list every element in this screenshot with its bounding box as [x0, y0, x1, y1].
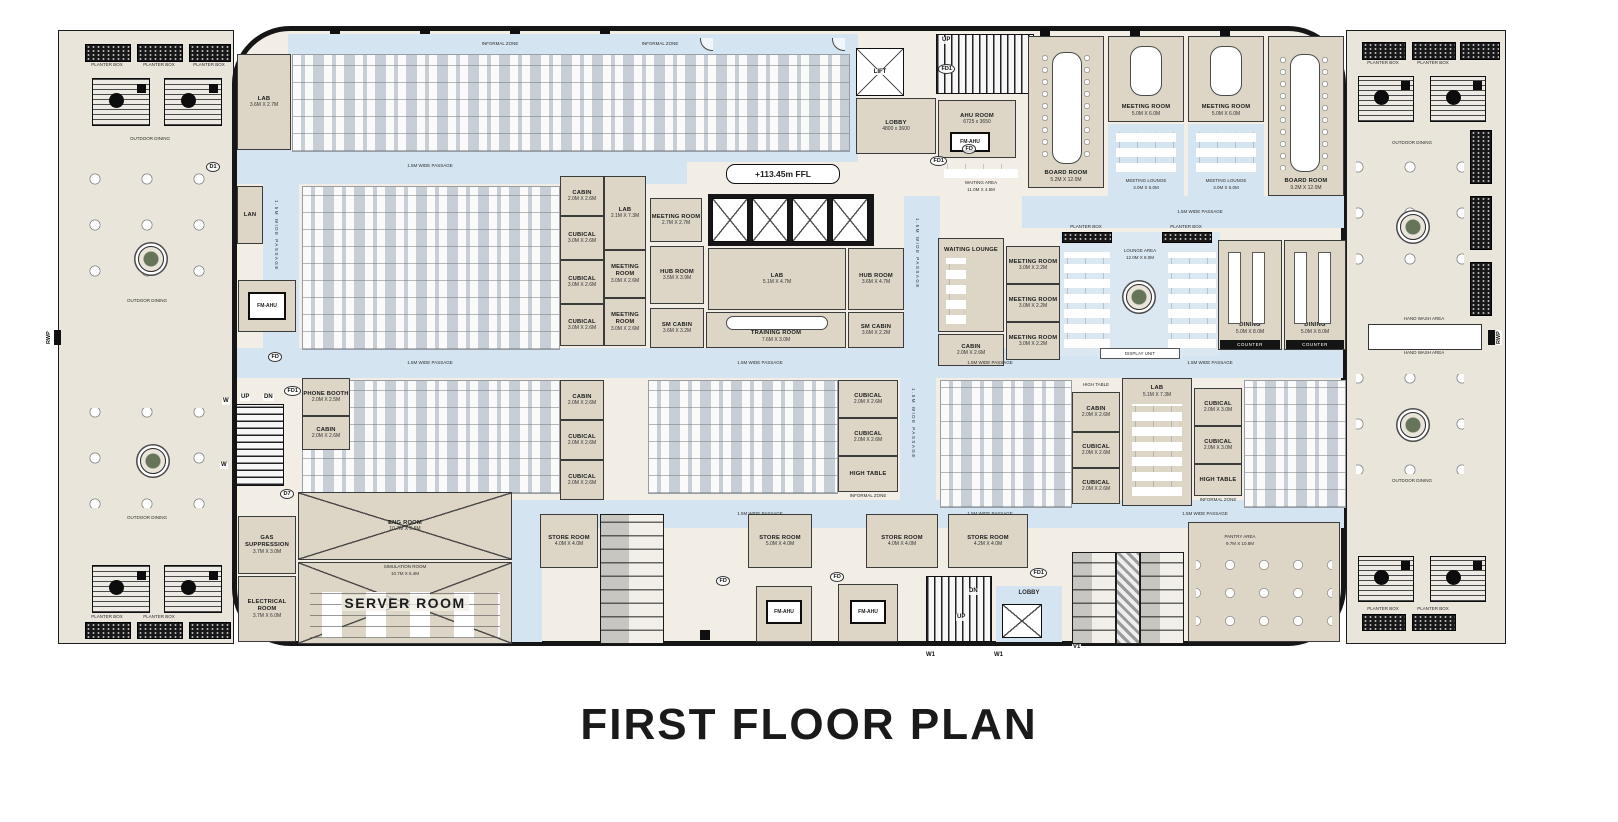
planter-box-label: PLANTER BOX	[193, 62, 225, 67]
passage-label: 1.5M WIDE PASSAGE	[967, 360, 1012, 365]
room-dims: 2.0M X 2.6M	[1082, 412, 1110, 418]
room-dims: 7.6M X 3.0M	[762, 337, 790, 343]
pergola-seating	[1358, 556, 1414, 602]
round-planter	[138, 246, 164, 272]
counter: COUNTER	[1286, 340, 1344, 349]
room-dims: 3.0M X 2.6M	[568, 325, 596, 331]
pergola-seating	[1430, 556, 1486, 602]
informal-zone-label: INFORMAL ZONE	[850, 493, 887, 498]
room-lan: LAN	[237, 186, 263, 244]
room-dims: 3.6M X 3.2M	[663, 328, 691, 334]
room-name: CABIN	[961, 344, 980, 351]
planter-box-label: PLANTER BOX	[91, 62, 123, 67]
meeting-lounge-dims: 3.0M X 5.0M	[1213, 185, 1239, 190]
planter-box	[1362, 42, 1406, 60]
round-planter	[1400, 214, 1426, 240]
planter-box	[1470, 196, 1492, 250]
room-name: PHONE BOOTH	[303, 391, 348, 398]
server-room-label: SERVER ROOM	[341, 595, 468, 611]
room-sm-cabin-a: SM CABIN 3.6M X 3.2M	[650, 308, 704, 348]
lounge-area-dims: 12.0M X 8.0M	[1126, 255, 1154, 260]
passage-label: 1.5M WIDE PASSAGE	[1177, 209, 1222, 214]
lounge-sofas	[1196, 132, 1256, 172]
passage-label: 1.5M WIDE PASSAGE	[407, 360, 452, 365]
room-name: MEETING ROOM	[1009, 335, 1057, 342]
planter-box	[1062, 232, 1112, 243]
room-name: CUBICAL	[854, 431, 881, 438]
room-name: MEETING ROOM	[1202, 104, 1250, 111]
service-shaft	[1116, 552, 1140, 644]
pergola-seating	[164, 78, 222, 126]
room-name: CUBICAL	[1204, 401, 1231, 408]
lab-desks	[1132, 404, 1182, 496]
room-name: CUBICAL	[568, 434, 595, 441]
room-phone-booth: PHONE BOOTH 2.0M X 2.5M	[302, 378, 350, 416]
room-lobby-top: LOBBY 4800 x 3600	[856, 98, 936, 154]
counter: COUNTER	[1220, 340, 1280, 349]
room-name: CABIN	[316, 427, 335, 434]
waiting-area-dims: 11.0M X 4.5M	[967, 187, 995, 192]
dining-table	[1228, 252, 1241, 324]
passage-label: 1.5M WIDE PASSAGE	[1187, 360, 1232, 365]
room-dims: 3.0M X 2.6M	[568, 282, 596, 288]
passage-vertical-lower	[900, 378, 936, 506]
room-store: STORE ROOM 4.0M X 4.0M	[866, 514, 938, 568]
ffl-level-tag: +113.45m FFL	[726, 164, 840, 184]
room-cubical: CUBICAL 3.0M X 2.6M	[560, 260, 604, 304]
room-cubical: CUBICAL 3.0M X 2.6M	[560, 216, 604, 260]
planter-box	[189, 622, 231, 639]
room-cubical: CUBICAL 2.0M X 2.6M	[560, 460, 604, 500]
up-label: UP	[956, 614, 966, 621]
pantry-tables	[1196, 550, 1332, 636]
meeting-table	[1130, 46, 1162, 96]
room-cubical: CUBICAL 2.0M X 2.6M	[560, 420, 604, 460]
outdoor-dining-label: OUTDOOR DINING	[127, 515, 167, 520]
room-name: CUBICAL	[1204, 439, 1231, 446]
pantry-label: PANTRY AREA	[1224, 534, 1255, 539]
room-name: WAITING LOUNGE	[944, 247, 998, 254]
round-planter	[1400, 412, 1426, 438]
planter-box-label: PLANTER BOX	[143, 614, 175, 619]
room-name: LAB	[1151, 385, 1164, 392]
room-dims: 4.0M X 4.0M	[888, 541, 916, 547]
room-store: STORE ROOM 4.0M X 4.0M	[540, 514, 598, 568]
room-name: MEETING ROOM	[605, 264, 645, 278]
toilet-block-left	[600, 514, 664, 644]
grid-marker-w: W	[220, 462, 228, 469]
meeting-lounge-label: MEETING LOUNGE	[1206, 178, 1247, 183]
rwp-marker: RWP	[46, 330, 52, 345]
passage-bottom-left-vertical	[512, 528, 542, 642]
planter-box	[1362, 614, 1406, 631]
passage-label-vertical: 1.5M WIDE PASSAGE	[911, 388, 916, 459]
passage-label: 1.5M WIDE PASSAGE	[407, 163, 452, 168]
room-dims: 2.0M X 2.6M	[854, 399, 882, 405]
room-dims: 5.0M X 6.0M	[1212, 111, 1240, 117]
room-name: STORE ROOM	[881, 535, 923, 542]
room-store: STORE ROOM 5.0M X 4.0M	[748, 514, 812, 568]
room-dims: 5.0M X 8.0M	[1236, 329, 1264, 335]
passage-label: 1.5M WIDE PASSAGE	[1182, 511, 1227, 516]
planter-box-label: PLANTER BOX	[1170, 224, 1202, 229]
room-name: HUB ROOM	[660, 269, 694, 276]
grid-marker-w1: W1	[993, 652, 1004, 659]
planter-box-label: PLANTER BOX	[91, 614, 123, 619]
simulation-room-label: SIMULATION ROOM	[384, 564, 426, 569]
planter-box	[137, 622, 183, 639]
lift: LIFT	[856, 48, 904, 96]
rwp-marker: RWP	[1496, 330, 1502, 345]
room-electrical: ELECTRICAL ROOM 3.7M X 6.0M	[238, 576, 296, 642]
room-name: ELECTRICAL ROOM	[239, 599, 295, 613]
simulation-room-dims: 10.7M X 6.4M	[391, 571, 419, 576]
room-name: CUBICAL	[568, 232, 595, 239]
pergola-seating	[1430, 76, 1486, 122]
room-meeting-27: MEETING ROOM 2.7M X 2.7M	[650, 198, 702, 242]
informal-zone-label: INFORMAL ZONE	[642, 41, 679, 46]
board-table	[1290, 54, 1320, 172]
outdoor-dining-label: OUTDOOR DINING	[1392, 140, 1432, 145]
room-name: SM CABIN	[662, 322, 692, 329]
planter-box	[1470, 262, 1492, 316]
pergola-seating	[92, 78, 150, 126]
room-name: CUBICAL	[1082, 444, 1109, 451]
up-label: UP	[240, 394, 250, 401]
room-cubical: CUBICAL 2.0M X 2.6M	[838, 418, 898, 456]
room-cubical: CUBICAL 2.0M X 2.6M	[1072, 432, 1120, 468]
room-name: MEETING ROOM	[1009, 297, 1057, 304]
hand-wash-label: HAND WASH AREA	[1404, 316, 1445, 321]
room-cubical: CUBICAL 3.0M X 2.6M	[560, 304, 604, 346]
room-eng: ENG ROOM 10.7M X 6.5M	[298, 492, 512, 560]
room-dims: 2.7M X 2.7M	[662, 220, 690, 226]
room-store: STORE ROOM 4.2M X 4.0M	[948, 514, 1028, 568]
outdoor-dining-label: OUTDOOR DINING	[127, 298, 167, 303]
toilet-block-right	[1072, 552, 1116, 644]
room-name: BOARD ROOM	[1285, 178, 1328, 185]
room-dims: 2.0M X 2.6M	[568, 196, 596, 202]
room-name: STORE ROOM	[967, 535, 1009, 542]
lounge-sofas	[1064, 252, 1110, 348]
room-cabin: CABIN 2.0M X 2.6M	[560, 380, 604, 420]
lift	[792, 198, 828, 242]
room-dims: 5.0M X 6.0M	[1132, 111, 1160, 117]
lift	[1002, 604, 1042, 638]
planter-box	[137, 44, 183, 62]
room-dims: 2.0M X 2.6M	[957, 350, 985, 356]
fm-ahu-unit: FM-AHU	[766, 600, 802, 624]
lounge-area-label: LOUNGE AREA	[1124, 248, 1156, 253]
lounge-sofas	[946, 258, 966, 324]
open-office-bottom-center	[648, 380, 838, 494]
rwp-outlet	[1488, 330, 1495, 345]
room-high-table: HIGH TABLE	[1194, 464, 1242, 496]
room-dims: 10.7M X 6.5M	[389, 526, 420, 532]
planter-box-label: PLANTER BOX	[143, 62, 175, 67]
room-name: ENG ROOM	[388, 520, 422, 527]
outdoor-dining-label: OUTDOOR DINING	[130, 136, 170, 141]
rwp-outlet	[54, 330, 61, 345]
room-meeting-22: MEETING ROOM 3.0M X 2.2M	[1006, 284, 1060, 322]
planter-box	[1412, 42, 1456, 60]
lift	[752, 198, 788, 242]
room-name: CABIN	[572, 394, 591, 401]
room-name: MEETING ROOM	[605, 312, 645, 326]
room-name: CABIN	[1086, 406, 1105, 413]
room-name: CUBICAL	[568, 319, 595, 326]
dining-table	[1294, 252, 1307, 324]
room-dims: 3.7M X 3.0M	[253, 549, 281, 555]
room-dims: 2.0M X 2.6M	[568, 440, 596, 446]
high-table-label: HIGH TABLE	[1083, 382, 1109, 387]
meeting-lounge-dims: 3.0M X 5.0M	[1133, 185, 1159, 190]
room-name: CUBICAL	[568, 276, 595, 283]
room-name: LAB	[258, 96, 271, 103]
planter-box	[1412, 614, 1456, 631]
room-lab-center: LAB 5.1M X 4.7M	[708, 248, 846, 310]
outdoor-dining-tables	[1356, 158, 1464, 268]
room-meeting-22: MEETING ROOM 3.0M X 2.2M	[1006, 246, 1060, 284]
room-dims: 5.2M X 12.0M	[1050, 177, 1081, 183]
room-name: CUBICAL	[568, 474, 595, 481]
pantry-dims: 9.7M X 10.8M	[1226, 541, 1254, 546]
down-label: DN	[263, 394, 274, 401]
planter-box-label: PLANTER BOX	[1367, 606, 1399, 611]
room-dims: 2.0M X 2.6M	[568, 400, 596, 406]
room-cubical: CUBICAL 2.0M X 2.6M	[838, 380, 898, 418]
room-sm-cabin-b: SM CABIN 3.6M X 2.2M	[848, 312, 904, 348]
planter-box-label: PLANTER BOX	[1367, 60, 1399, 65]
meeting-table	[1210, 46, 1242, 96]
lounge-sofas	[1168, 252, 1216, 348]
room-dims: 4.0M X 4.0M	[555, 541, 583, 547]
room-name: AHU ROOM	[960, 113, 994, 120]
room-name: MEETING ROOM	[1009, 259, 1057, 266]
room-name: SM CABIN	[861, 324, 891, 331]
waiting-area-label: WAITING AREA	[965, 180, 997, 185]
room-dims: 3.0M X 2.2M	[1019, 303, 1047, 309]
room-cubical: CUBICAL 2.0M X 3.0M	[1194, 388, 1242, 426]
up-label: UP	[941, 37, 951, 44]
board-chairs	[1082, 52, 1092, 162]
room-name: STORE ROOM	[548, 535, 590, 542]
door-marker-d7: D7	[280, 489, 294, 499]
down-label: DN	[968, 588, 979, 595]
room-name: CUBICAL	[1082, 480, 1109, 487]
pergola-seating	[92, 565, 150, 613]
passage-label: 1.5M WIDE PASSAGE	[967, 511, 1012, 516]
room-meeting-small: MEETING ROOM 3.0M X 2.6M	[604, 298, 646, 346]
passage-label-vertical: 1.5M WIDE PASSAGE	[274, 200, 279, 271]
room-name: LAB	[771, 273, 784, 280]
hand-wash-label: HAND WASH AREA	[1404, 350, 1445, 355]
planter-box	[1162, 232, 1212, 243]
outdoor-dining-label: OUTDOOR DINING	[1392, 478, 1432, 483]
lift-label: LIFT	[873, 69, 888, 76]
hand-wash-counter	[1368, 324, 1482, 350]
training-table	[726, 316, 828, 330]
plan-title: FIRST FLOOR PLAN	[0, 700, 1618, 750]
planter-box	[189, 44, 231, 62]
room-name: STORE ROOM	[759, 535, 801, 542]
room-name: HIGH TABLE	[1200, 477, 1237, 484]
display-unit-label: DISPLAY UNIT	[1125, 351, 1155, 356]
room-name: HIGH TABLE	[850, 471, 887, 478]
lift	[712, 198, 748, 242]
room-dims: 4800 x 3600	[882, 126, 910, 132]
planter-box	[85, 622, 131, 639]
room-name: TRAINING ROOM	[751, 330, 801, 337]
room-dims: 3.0M X 2.2M	[1019, 341, 1047, 347]
pergola-seating	[164, 565, 222, 613]
planter-box	[85, 44, 131, 62]
round-planter	[140, 448, 166, 474]
room-meeting-small: MEETING ROOM 3.0M X 2.6M	[604, 250, 646, 298]
open-office-bottom-right-b	[1244, 380, 1346, 508]
open-office-bottom-right-a	[940, 380, 1072, 508]
planter-box-label: PLANTER BOX	[1417, 60, 1449, 65]
room-dims: 3.6M X 4.7M	[862, 279, 890, 285]
room-cubical: CUBICAL 2.0M X 2.6M	[1072, 468, 1120, 504]
lift	[832, 198, 868, 242]
dining-table	[1318, 252, 1331, 324]
passage-label-vertical: 1.5M WIDE PASSAGE	[915, 218, 920, 289]
round-planter	[1126, 284, 1152, 310]
room-cubical: CUBICAL 2.0M X 3.0M	[1194, 426, 1242, 464]
grid-marker-w1: W1	[925, 652, 936, 659]
room-dims: 5.1M X 7.3M	[1143, 392, 1171, 398]
room-name: LOBBY	[885, 120, 906, 127]
room-name: MEETING ROOM	[1122, 104, 1170, 111]
open-office-top	[292, 54, 850, 152]
display-unit: DISPLAY UNIT	[1100, 348, 1180, 359]
room-dims: 3.6M X 2.7M	[250, 102, 278, 108]
room-lab-narrow: LAB 2.1M X 7.3M	[604, 176, 646, 250]
room-name: GAS SUPPRESSION	[239, 535, 295, 549]
grid-marker-w: W	[222, 398, 230, 405]
door-marker-d1: D1	[206, 162, 220, 172]
room-name: MEETING ROOM	[652, 214, 700, 221]
waiting-area-sofas	[944, 164, 1018, 178]
fm-ahu-unit: FM-AHU	[850, 600, 886, 624]
dining-table	[1252, 252, 1265, 324]
board-chairs	[1320, 54, 1330, 170]
planter-box	[1460, 42, 1500, 60]
staircase-left	[236, 404, 284, 486]
open-office-mid-left	[302, 186, 560, 350]
room-name: LAN	[244, 212, 257, 219]
board-chairs	[1040, 52, 1050, 162]
room-dims: 2.1M X 7.3M	[611, 213, 639, 219]
room-dims: 4.2M X 4.0M	[974, 541, 1002, 547]
toilet-block-right	[1140, 552, 1184, 644]
room-gas-suppression: GAS SUPPRESSION 3.7M X 3.0M	[238, 516, 296, 574]
room-name: CABIN	[572, 190, 591, 197]
room-dims: 2.0M X 2.6M	[568, 480, 596, 486]
fm-ahu-unit: FM-AHU	[248, 292, 286, 320]
room-dims: 3.7M X 6.0M	[253, 613, 281, 619]
room-high-table: HIGH TABLE	[838, 456, 898, 492]
room-dims: 2.0M X 2.5M	[312, 397, 340, 403]
room-dims: 5.0M X 4.0M	[766, 541, 794, 547]
room-meeting-22: MEETING ROOM 3.0M X 2.2M	[1006, 322, 1060, 360]
room-dims: 3.0M X 2.6M	[568, 238, 596, 244]
lobby-bottom-label: LOBBY	[1019, 590, 1040, 596]
room-cabin: CABIN 2.0M X 2.6M	[302, 416, 350, 450]
room-dims: 5.0M X 8.0M	[1301, 329, 1329, 335]
planter-box-label: PLANTER BOX	[1070, 224, 1102, 229]
room-name: LAB	[619, 207, 632, 214]
room-cabin: CABIN 2.0M X 2.6M	[560, 176, 604, 216]
room-dims: 2.0M X 2.6M	[854, 437, 882, 443]
lounge-sofas	[1116, 132, 1176, 172]
room-dims: 6725 x 3650	[963, 119, 991, 125]
meeting-lounge-label: MEETING LOUNGE	[1126, 178, 1167, 183]
planter-box	[1470, 130, 1492, 184]
grid-marker-v1: V1	[1072, 644, 1081, 651]
room-dims: 3.0M X 2.6M	[611, 278, 639, 284]
floor-plan: PLANTER BOX PLANTER BOX PLANTER BOX OUTD…	[0, 0, 1618, 822]
staircase-bottom	[926, 576, 992, 642]
room-hub-b: HUB ROOM 3.6M X 4.7M	[848, 248, 904, 310]
room-dims: 3.0M X 2.2M	[1019, 265, 1047, 271]
room-dims: 3.0M X 2.6M	[611, 326, 639, 332]
informal-zone-label: INFORMAL ZONE	[482, 41, 519, 46]
passage-label: 1.5M WIDE PASSAGE	[737, 511, 782, 516]
room-dims: 2.0M X 2.6M	[312, 433, 340, 439]
room-lab-small: LAB 3.6M X 2.7M	[237, 54, 291, 150]
room-name: HUB ROOM	[859, 273, 893, 280]
room-dims: 2.0M X 3.0M	[1204, 407, 1232, 413]
room-dims: 3.6M X 2.2M	[862, 330, 890, 336]
room-dims: 5.1M X 4.7M	[763, 279, 791, 285]
room-dims: 3.5M X 3.9M	[663, 275, 691, 281]
room-dims: 2.0M X 2.6M	[1082, 486, 1110, 492]
board-chairs	[1278, 54, 1288, 170]
column	[700, 630, 710, 640]
room-hub-a: HUB ROOM 3.5M X 3.9M	[650, 246, 704, 304]
informal-zone-label: INFORMAL ZONE	[1200, 497, 1237, 502]
board-table	[1052, 52, 1082, 164]
room-name: CUBICAL	[854, 393, 881, 400]
passage-label: 1.5M WIDE PASSAGE	[737, 360, 782, 365]
room-name: BOARD ROOM	[1045, 170, 1088, 177]
pergola-seating	[1358, 76, 1414, 122]
room-dims: 9.2M X 12.0M	[1290, 185, 1321, 191]
room-dims: 2.0M X 3.0M	[1204, 445, 1232, 451]
room-dims: 2.0M X 2.6M	[1082, 450, 1110, 456]
planter-box-label: PLANTER BOX	[1417, 606, 1449, 611]
room-cabin: CABIN 2.0M X 2.6M	[1072, 392, 1120, 432]
